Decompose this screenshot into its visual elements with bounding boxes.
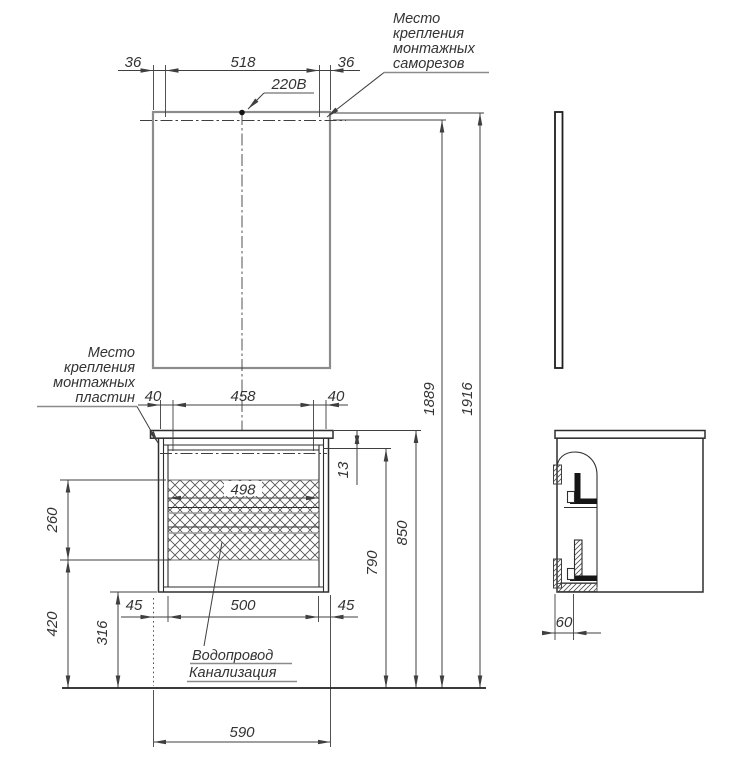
- dim-utility-width: 500: [230, 597, 256, 614]
- utilities-note-line2: Канализация: [189, 665, 277, 681]
- countertop-side: [555, 431, 705, 439]
- power-outlet-point: [239, 110, 245, 116]
- cabinet-front-view: 498: [151, 431, 334, 593]
- dim-height-to-mount: 1889: [421, 382, 438, 416]
- screws-note-line2: крепления: [393, 26, 464, 42]
- dim-height-total: 1916: [459, 382, 476, 416]
- dim-top-rail-offset: 13: [335, 461, 352, 478]
- screws-note-line1: Место: [393, 11, 440, 27]
- dim-cabinet-width: 590: [229, 724, 255, 741]
- upper-drawer-bracket: [568, 492, 575, 503]
- dim-height-rail: 790: [364, 550, 381, 576]
- dim-utility-offset-left: 45: [126, 597, 143, 614]
- dim-wall-offset: 60: [556, 614, 573, 631]
- dim-height-countertop: 850: [394, 520, 411, 546]
- mirror-outline: [153, 112, 330, 368]
- technical-drawing: 36 518 36 220В Место крепления монтажных…: [0, 0, 740, 764]
- lower-drawer-front: [575, 540, 583, 577]
- dim-cabinet-left: 260 420 316: [44, 480, 171, 688]
- dim-plate-offset-left: 40: [145, 388, 162, 405]
- plates-note-line2: крепления: [64, 360, 135, 376]
- dim-cabinet-right: 13 790 850: [323, 431, 421, 689]
- dim-mirror-top: 36 518 36: [118, 54, 360, 117]
- mounting-plate-upper: [554, 465, 562, 484]
- screws-note-line4: саморезов: [393, 56, 465, 72]
- dim-screw-offset-right: 36: [338, 54, 355, 71]
- upper-drawer-front: [575, 473, 581, 501]
- utilities-note-line1: Водопровод: [192, 648, 273, 664]
- dim-screw-offset-left: 36: [125, 54, 142, 71]
- dim-clearance-height: 420: [44, 611, 61, 637]
- countertop: [151, 431, 334, 439]
- drawing-canvas: 36 518 36 220В Место крепления монтажных…: [0, 0, 740, 764]
- dim-side-depth: 60: [542, 594, 601, 640]
- mirror-side-view: [555, 112, 563, 368]
- power-label: 220В: [270, 76, 306, 93]
- dim-interior-width: 498: [230, 482, 256, 499]
- dim-screw-spacing: 518: [230, 54, 256, 71]
- lower-drawer-bracket: [568, 569, 575, 580]
- power-callout: 220В: [248, 76, 314, 109]
- plates-note-line4: пластин: [75, 390, 135, 406]
- dim-plate-spacing: 458: [230, 388, 256, 405]
- screws-note-line3: монтажных: [393, 41, 476, 57]
- side-bottom-hatch: [557, 584, 597, 592]
- dim-heights-right: 1889 1916: [333, 113, 484, 688]
- cabinet-side-view: [554, 431, 706, 593]
- plates-note: Место крепления монтажных пластин: [37, 345, 158, 443]
- plates-note-line1: Место: [88, 345, 135, 361]
- plates-note-line3: монтажных: [53, 375, 136, 391]
- dim-utility-offset-right: 45: [338, 597, 355, 614]
- dim-drawer-zone-height: 260: [44, 507, 61, 534]
- dim-plate-offset-right: 40: [328, 388, 345, 405]
- dim-bottom-height: 316: [94, 620, 111, 646]
